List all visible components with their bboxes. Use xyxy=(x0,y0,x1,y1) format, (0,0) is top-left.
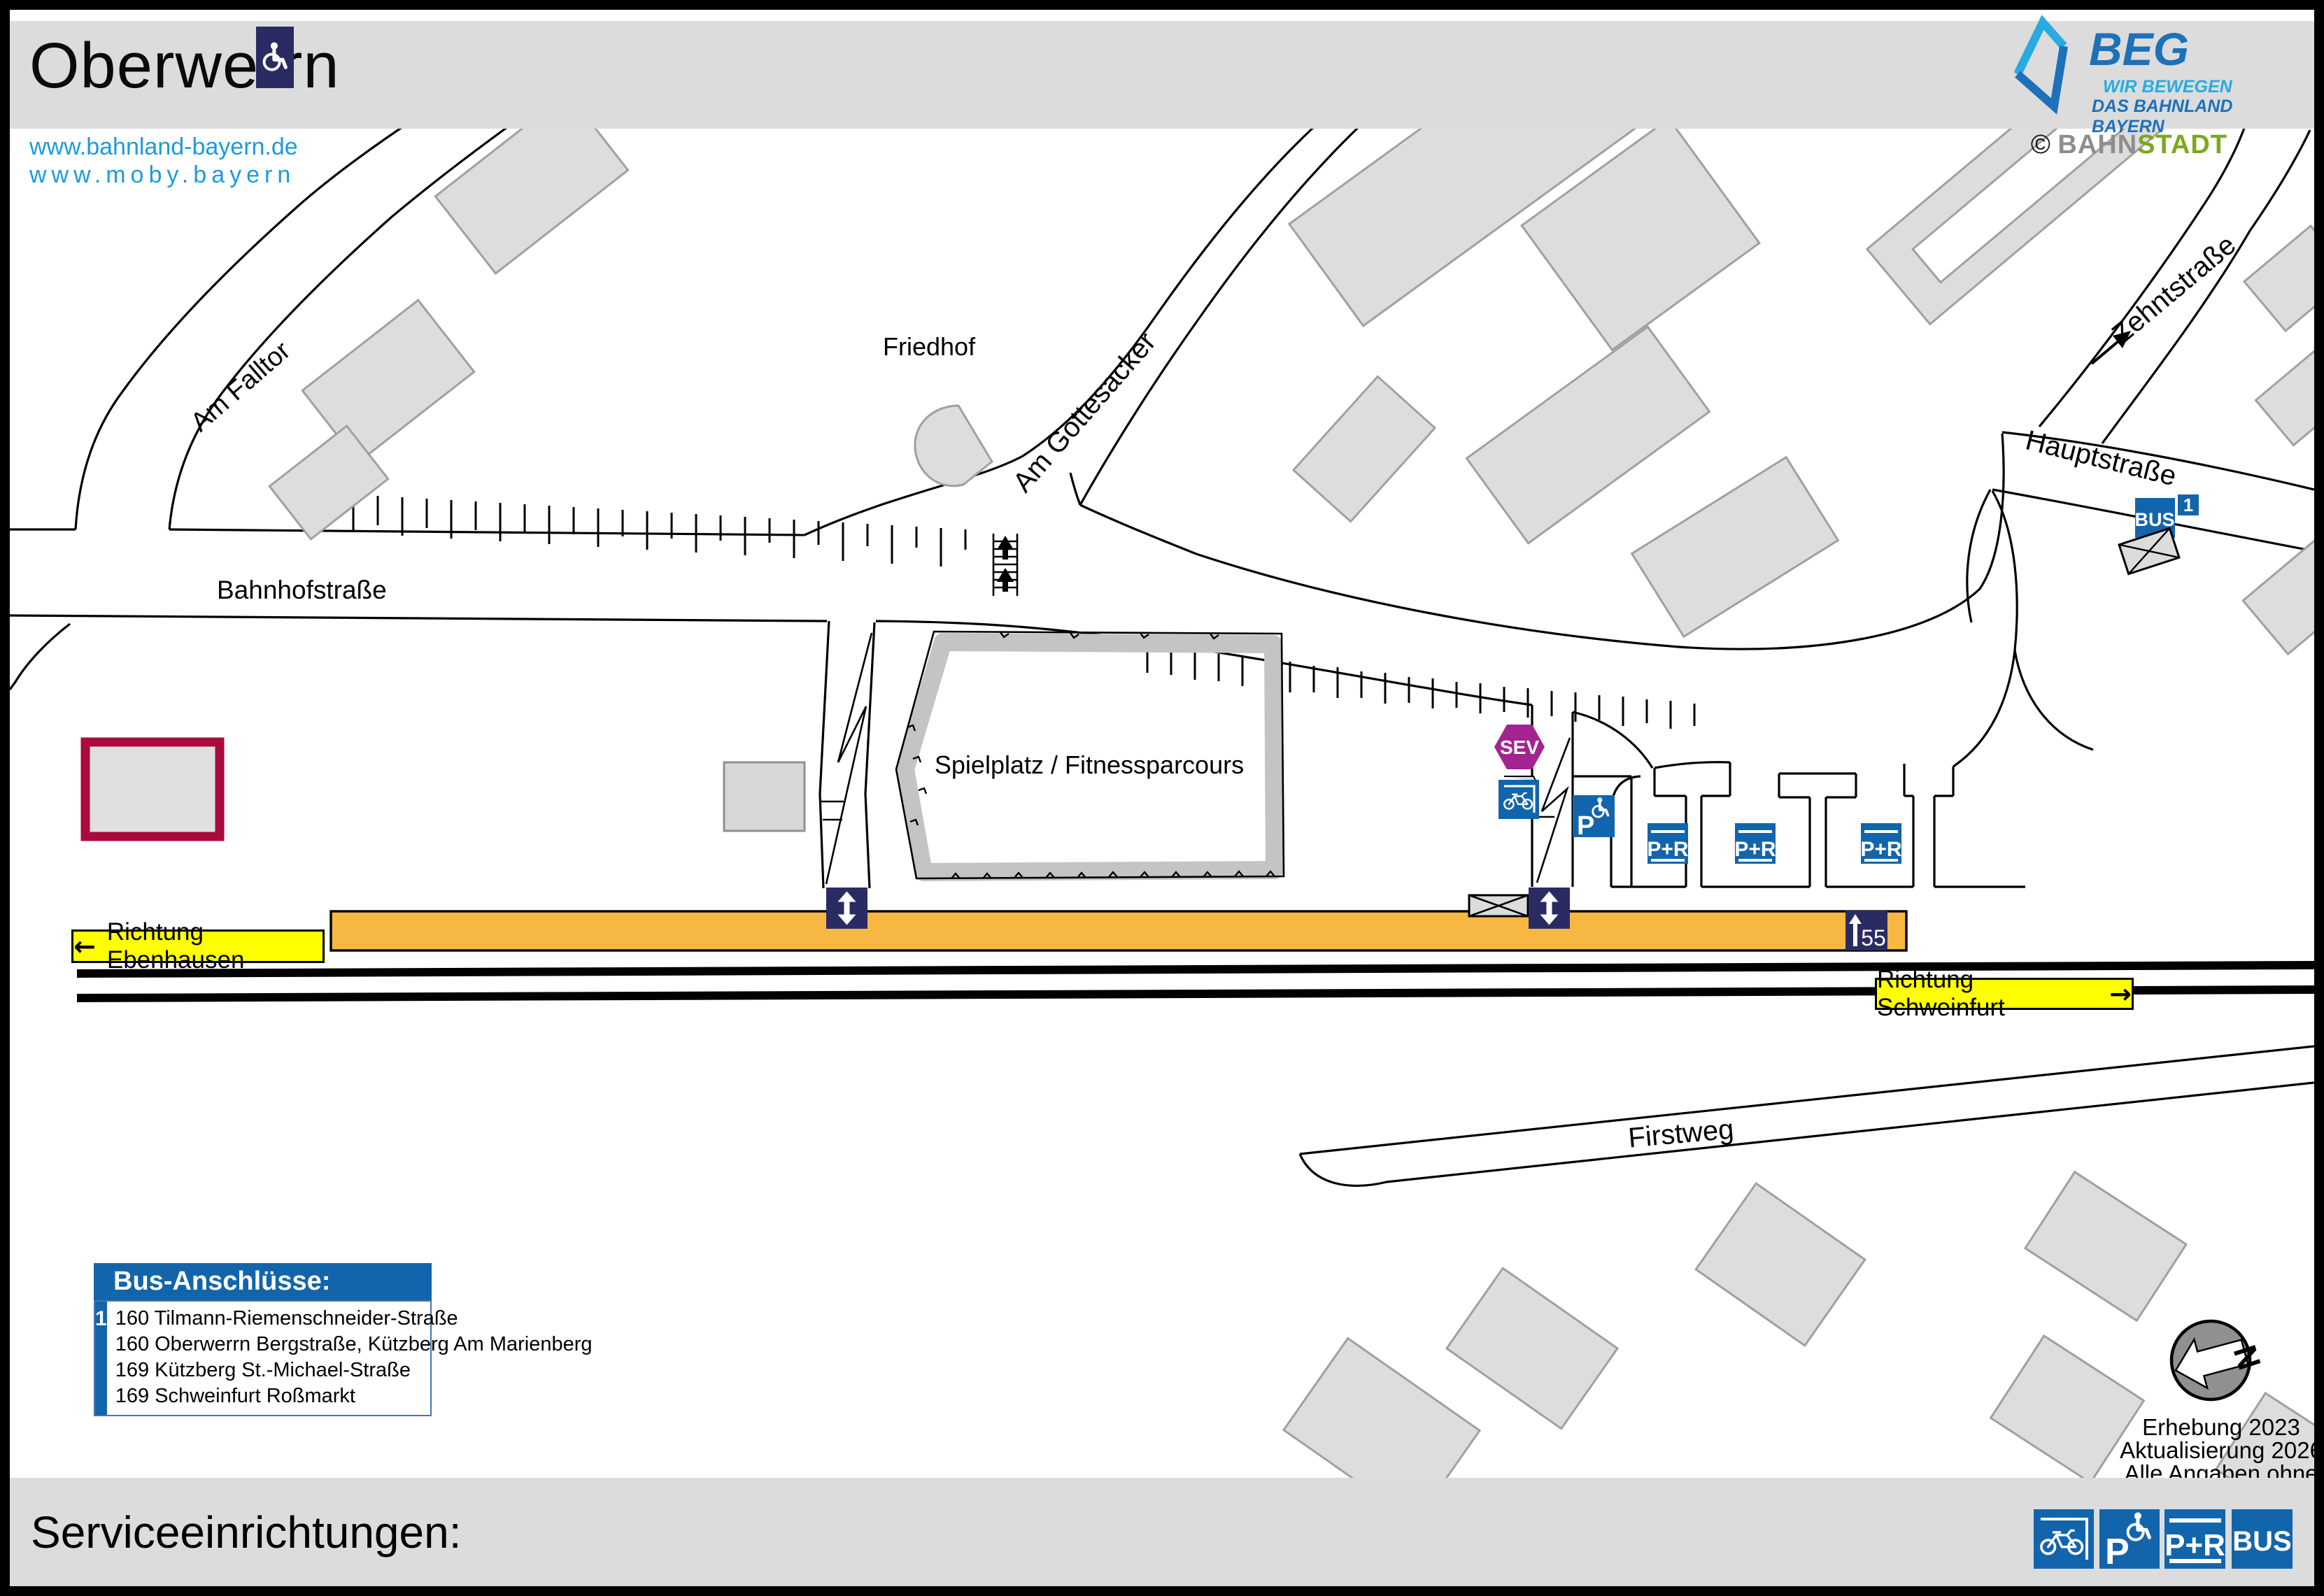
label-firstweg: Firstweg xyxy=(1627,1114,1735,1154)
svg-text:BUS: BUS xyxy=(2134,509,2174,530)
platform-height-icon: 55 xyxy=(1845,911,1887,950)
parking-ticks xyxy=(304,490,1694,729)
footnote-survey: Erhebung 2023 xyxy=(2081,1416,2324,1439)
svg-text:P: P xyxy=(1577,811,1594,841)
svg-text:P+R: P+R xyxy=(1860,838,1902,861)
beg-logo: BEG WIR BEWEGEN DAS BAHNLAND BAYERN xyxy=(2011,10,2248,129)
footer-bike-shelter-icon xyxy=(2034,1509,2094,1569)
beg-tagline-1: WIR BEWEGEN xyxy=(2103,77,2232,97)
website-links: www.bahnland-bayern.de www.moby.bayern xyxy=(29,133,298,189)
platform xyxy=(331,911,1906,950)
station-map-page: 55 SEV P P+R P+R xyxy=(0,0,2324,1596)
park-and-ride-icon-3: P+R xyxy=(1860,823,1902,864)
sev-stop-icon: SEV xyxy=(1494,725,1545,769)
direction-label-ebenhausen: ← Richtung Ebenhausen xyxy=(71,929,325,963)
label-spielplatz: Spielplatz / Fitnessparcours xyxy=(935,750,1244,779)
direction-text-left: Richtung Ebenhausen xyxy=(107,918,323,974)
label-am-gottesacker: Am Gottesacker xyxy=(1007,327,1162,498)
compass-icon: N xyxy=(2169,1321,2269,1399)
accessible-station-icon xyxy=(256,27,294,88)
bike-parking-icon xyxy=(1498,776,1539,819)
footer-title: Serviceeinrichtungen: xyxy=(31,1506,461,1558)
credit-stadt: STADT xyxy=(2137,130,2227,159)
copyright-symbol: © xyxy=(2031,130,2050,159)
platform-access-west-icon xyxy=(826,888,867,929)
bus-route: 169 Kützberg St.-Michael-Straße xyxy=(115,1358,593,1383)
label-bahnhofstrasse: Bahnhofstraße xyxy=(217,576,387,604)
link-bahnland-bayern[interactable]: www.bahnland-bayern.de xyxy=(29,133,298,161)
platform-shelter xyxy=(1469,895,1528,916)
credit: © BAHNSTADT xyxy=(10,130,2227,160)
station-building xyxy=(724,762,805,831)
direction-label-schweinfurt: Richtung Schweinfurt → xyxy=(1875,978,2134,1010)
svg-text:55: 55 xyxy=(1861,925,1886,950)
bus-route: 160 Tilmann-Riemenschneider-Straße xyxy=(115,1306,593,1332)
link-moby-bayern[interactable]: www.moby.bayern xyxy=(29,161,298,189)
footer-park-and-ride-icon: P+R xyxy=(2164,1509,2225,1569)
footer-service-icons: P P+R BUS xyxy=(2024,1505,2304,1575)
platform-access-east-icon xyxy=(1529,888,1570,929)
park-and-ride-icon-2: P+R xyxy=(1734,823,1776,864)
bus-connections-title: Bus-Anschlüsse: xyxy=(94,1263,432,1300)
bus-stop-number: 1 xyxy=(2183,494,2193,515)
bus-route: 169 Schweinfurt Roßmarkt xyxy=(115,1383,593,1409)
label-am-falltor: Am Falltor xyxy=(185,336,296,438)
svg-text:P+R: P+R xyxy=(1734,838,1776,861)
credit-bahn: BAHN xyxy=(2057,130,2137,159)
footer-bus-icon: BUS xyxy=(2232,1509,2293,1569)
crosswalk-steps xyxy=(993,534,1017,596)
bus-routes-list: 160 Tilmann-Riemenschneider-Straße 160 O… xyxy=(107,1302,600,1415)
beg-logo-mark xyxy=(2011,10,2095,122)
bus-stop-icon: BUS 1 xyxy=(2119,494,2199,574)
arrow-right-icon: → xyxy=(2109,978,2132,1009)
footer-accessible-parking-icon: P xyxy=(2099,1509,2160,1572)
label-hauptstrasse: Hauptstraße xyxy=(2022,425,2179,492)
bus-route: 160 Oberwerrn Bergstraße, Kützberg Am Ma… xyxy=(115,1332,593,1358)
svg-text:P: P xyxy=(2105,1532,2130,1572)
accessible-parking-icon: P xyxy=(1573,795,1615,841)
svg-text:BUS: BUS xyxy=(2232,1526,2291,1557)
bus-connections-box: Bus-Anschlüsse: 1 160 Tilmann-Riemenschn… xyxy=(94,1263,432,1416)
footnote-update: Aktualisierung 2026 xyxy=(2081,1439,2324,1462)
svg-text:P+R: P+R xyxy=(1647,838,1689,861)
header-bar xyxy=(10,21,2314,129)
arrow-left-icon: ← xyxy=(73,931,96,962)
bus-stop-number-badge: 1 xyxy=(95,1302,107,1415)
direction-text-right: Richtung Schweinfurt xyxy=(1877,966,2098,1022)
svg-text:SEV: SEV xyxy=(1500,736,1539,758)
park-and-ride-icon-1: P+R xyxy=(1647,823,1689,864)
label-friedhof: Friedhof xyxy=(883,332,976,361)
beg-logo-text: BEG xyxy=(2089,22,2189,76)
highlighted-building xyxy=(85,742,220,836)
svg-text:P+R: P+R xyxy=(2164,1528,2225,1562)
